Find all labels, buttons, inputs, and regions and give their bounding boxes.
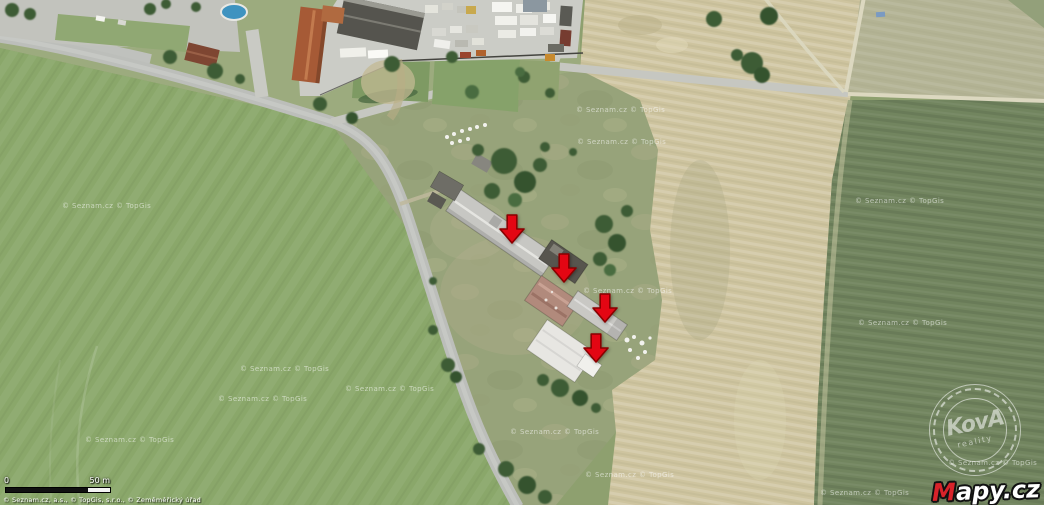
scale-end-label: 50 m [89,476,110,485]
location-arrow-icon [592,293,618,327]
scale-bar-segment [88,488,110,492]
scale-bar: 0 50 m [4,476,114,493]
logo-rest-text: apy.cz [955,475,1040,505]
location-arrow-icon [583,333,609,367]
location-arrow-icon [499,214,525,248]
aerial-imagery [0,0,1044,505]
location-arrow-icon [551,253,577,287]
mapy-cz-logo[interactable]: Mapy.cz [932,476,1041,505]
copyright-attribution: © Seznam.cz, a.s., © TopGis, s.r.o., © Z… [3,496,201,504]
agency-watermark-stamp: KovA reality [929,384,1021,476]
scale-start-label: 0 [4,476,9,485]
scale-bar-line [5,487,111,493]
logo-first-letter: M [932,478,957,505]
aerial-map[interactable]: © Seznam.cz © TopGis© Seznam.cz © TopGis… [0,0,1044,505]
